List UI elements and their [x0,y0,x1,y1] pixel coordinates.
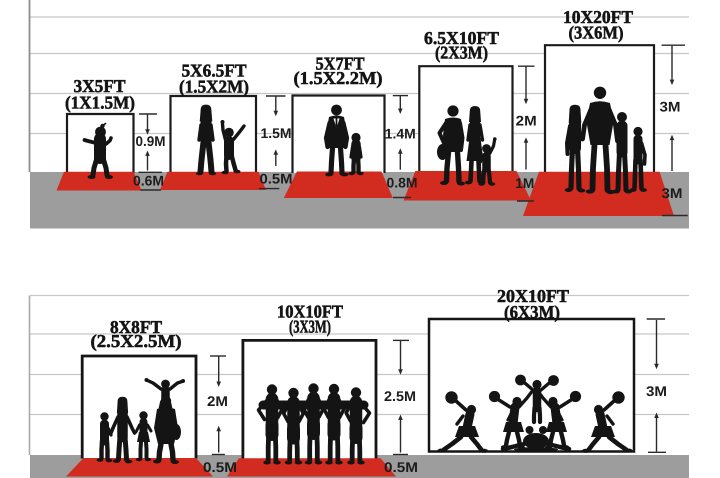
svg-text:0.5M: 0.5M [203,459,237,475]
svg-text:3M: 3M [662,185,683,201]
svg-text:3M: 3M [646,383,667,399]
svg-text:3M: 3M [660,99,681,115]
svg-text:1.5M: 1.5M [261,125,292,141]
svg-text:0.6M: 0.6M [133,172,164,188]
svg-text:2.5M: 2.5M [384,388,416,404]
svg-text:0.5M: 0.5M [384,459,418,475]
svg-text:(3X6M): (3X6M) [569,23,624,43]
svg-text:1M: 1M [515,175,534,191]
svg-text:(2.5X2.5M): (2.5X2.5M) [91,331,182,351]
svg-text:2M: 2M [207,393,228,409]
svg-text:(1.5X2.2M): (1.5X2.2M) [294,68,383,88]
svg-text:0.8M: 0.8M [387,174,418,190]
svg-text:(1.5X2M): (1.5X2M) [179,77,249,97]
svg-text:0.9M: 0.9M [136,133,166,149]
svg-text:(3X3M): (3X3M) [289,317,331,337]
svg-text:1.4M: 1.4M [385,126,416,142]
svg-text:(6X3M): (6X3M) [504,302,560,322]
svg-text:(1X1.5M): (1X1.5M) [65,93,135,113]
svg-text:0.5M: 0.5M [260,170,293,186]
svg-text:2M: 2M [516,113,537,129]
svg-text:(2X3M): (2X3M) [435,43,488,63]
